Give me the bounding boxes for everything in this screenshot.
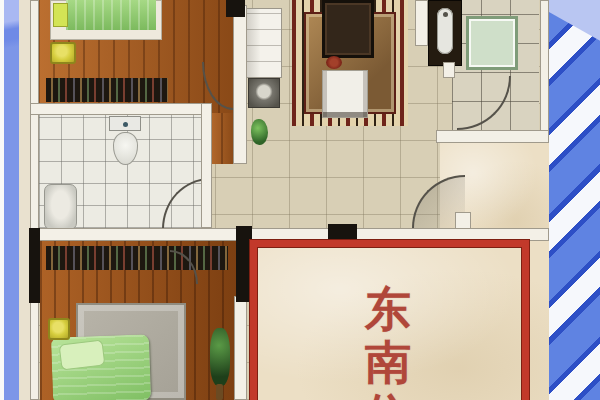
bed-top-left-pillow [53, 3, 68, 27]
kitchen-sink [437, 8, 453, 54]
bed-top-left-duvet [66, 0, 156, 30]
yellow-stool-top [50, 42, 76, 64]
dresser-shelf-top [46, 78, 168, 102]
faucet-icon [443, 12, 448, 17]
potted-plant-small [251, 119, 268, 145]
wall-bathroom-right [201, 103, 212, 228]
wall-bathroom-top [30, 103, 206, 115]
wall-black-left [29, 228, 40, 303]
toilet-flush-button [123, 122, 128, 127]
decor-stripe-right [549, 0, 600, 400]
floor-plan-screenshot: 东 南 位 [0, 0, 600, 400]
bed-bottom-left-pillow [59, 339, 106, 370]
highlight-label-char-1: 东 [365, 283, 411, 336]
wardrobe-shelf-bottom [46, 246, 228, 270]
decor-stripe-left [4, 0, 19, 400]
plant-pot [216, 384, 223, 400]
coffee-table [322, 0, 374, 58]
potted-plant-tall [210, 328, 230, 386]
wall-kitchen-bottom [436, 130, 549, 143]
washbasin [44, 184, 77, 230]
wall-black-top [226, 0, 245, 17]
rug-center-motif [326, 56, 342, 69]
wall-right-outer [540, 0, 549, 131]
wall-kitchen-left-top [415, 0, 428, 46]
toilet-tank [109, 116, 141, 131]
dining-table [466, 16, 518, 70]
side-table-lamp [248, 78, 280, 108]
wall-living-left [233, 5, 247, 164]
kitchen-counter [428, 0, 462, 66]
wall-kitchen-left-mid [443, 62, 455, 78]
highlight-label: 东 南 位 [362, 283, 414, 400]
highlight-label-char-3: 位 [365, 389, 411, 400]
yellow-stool-bottom [48, 318, 70, 340]
sofa-cabinet [246, 8, 282, 78]
wall-left-outer [30, 0, 39, 400]
wall-bedroom-bottom-right [234, 296, 247, 400]
white-armchair [322, 70, 368, 118]
highlight-label-char-2: 南 [365, 336, 411, 389]
